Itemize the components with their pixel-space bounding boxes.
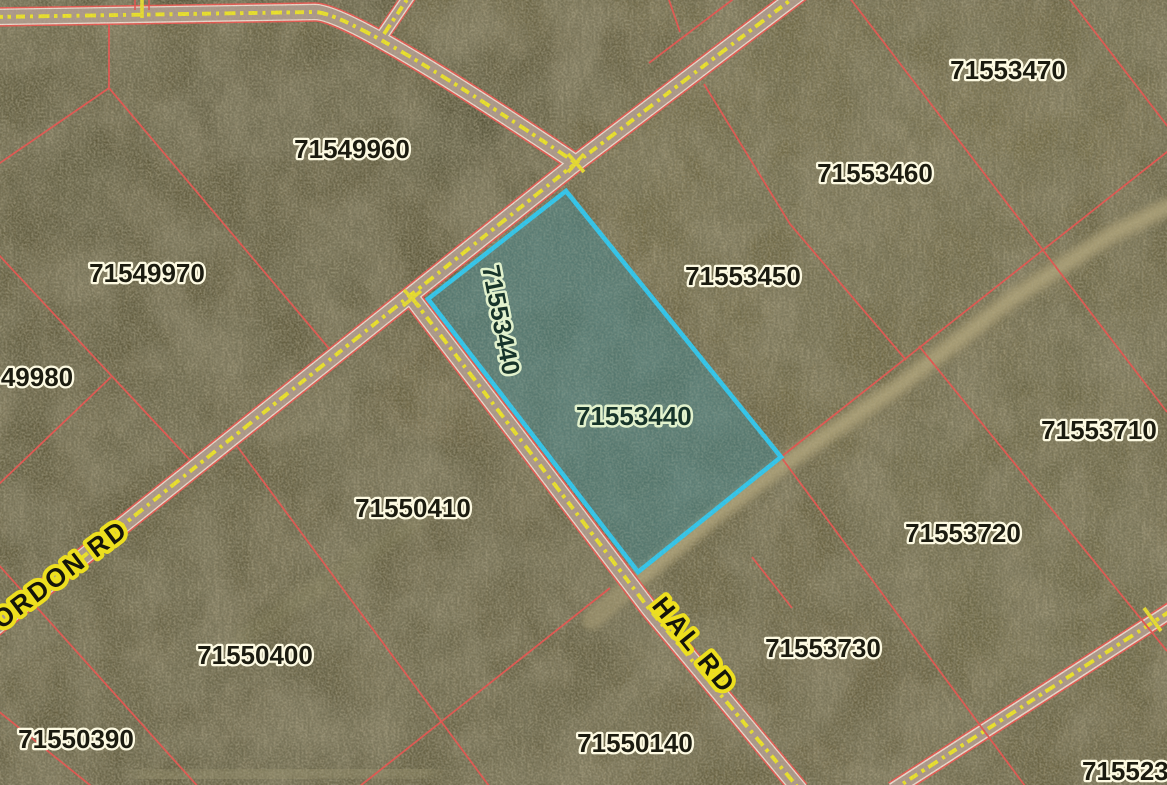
svg-text:7155233: 7155233 xyxy=(1082,756,1167,785)
svg-text:71553730: 71553730 xyxy=(765,633,881,663)
svg-text:71553710: 71553710 xyxy=(1041,415,1157,445)
svg-text:71549970: 71549970 xyxy=(89,258,205,288)
svg-text:71550410: 71550410 xyxy=(355,493,471,523)
svg-text:71553460: 71553460 xyxy=(817,158,933,188)
svg-text:71553720: 71553720 xyxy=(905,518,1021,548)
svg-text:71550140: 71550140 xyxy=(577,728,693,758)
svg-text:49980: 49980 xyxy=(1,362,73,392)
svg-text:71553440: 71553440 xyxy=(576,401,692,431)
svg-text:71553450: 71553450 xyxy=(685,261,801,291)
svg-text:71553470: 71553470 xyxy=(950,55,1066,85)
svg-text:71549960: 71549960 xyxy=(294,134,410,164)
svg-text:71550390: 71550390 xyxy=(18,724,134,754)
svg-text:71550400: 71550400 xyxy=(197,640,313,670)
